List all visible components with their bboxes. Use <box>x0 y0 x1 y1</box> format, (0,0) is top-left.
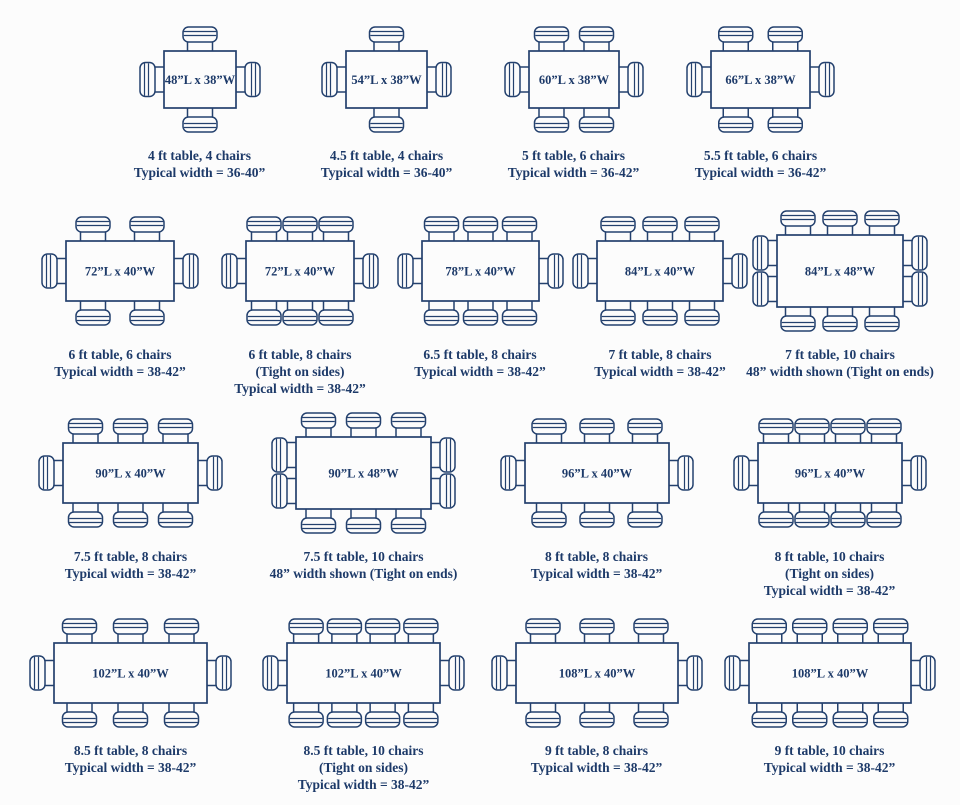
table-caption: 7 ft table, 8 chairsTypical width = 38-4… <box>594 346 726 380</box>
table-diagram: 90”L x 40”W <box>36 407 225 539</box>
table-top-view: 90”L x 40”W <box>36 416 225 530</box>
table-spec-cell: 84”L x 48”W 7 ft table, 10 chairs48” wid… <box>750 205 930 380</box>
table-spec-cell: 72”L x 40”W 6 ft table, 6 chairsTypical … <box>30 205 210 380</box>
caption-line: Typical width = 36-42” <box>508 164 640 181</box>
caption-line: 6.5 ft table, 8 chairs <box>414 346 546 363</box>
table-spec-cell: 96”L x 40”W 8 ft table, 8 chairsTypical … <box>480 407 713 582</box>
caption-line: 9 ft table, 8 chairs <box>531 742 663 759</box>
table-caption: 9 ft table, 8 chairsTypical width = 38-4… <box>531 742 663 776</box>
table-spec-cell: 72”L x 40”W 6 ft table, 8 chairs(Tight o… <box>210 205 390 397</box>
caption-line: Typical width = 38-42” <box>531 565 663 582</box>
table-top-view: 90”L x 48”W <box>269 410 458 536</box>
caption-line: 4.5 ft table, 4 chairs <box>321 147 453 164</box>
table-spec-cell: 90”L x 40”W 7.5 ft table, 8 chairsTypica… <box>14 407 247 582</box>
table-diagram: 108”L x 40”W <box>489 613 705 733</box>
caption-line: 48” width shown (Tight on ends) <box>270 565 458 582</box>
caption-line: (Tight on sides) <box>764 565 896 582</box>
table-diagram: 108”L x 40”W <box>722 613 938 733</box>
table-diagram: 72”L x 40”W <box>39 205 201 337</box>
table-size-label: 66”L x 38”W <box>725 73 796 87</box>
table-caption: 7.5 ft table, 8 chairsTypical width = 38… <box>65 548 197 582</box>
table-top-view: 96”L x 40”W <box>498 416 696 530</box>
table-caption: 6.5 ft table, 8 chairsTypical width = 38… <box>414 346 546 380</box>
table-top-view: 84”L x 40”W <box>570 214 750 328</box>
table-top-view: 48”L x 38”W <box>137 24 263 135</box>
table-caption: 5.5 ft table, 6 chairsTypical width = 36… <box>695 147 827 181</box>
table-spec-cell: 102”L x 40”W 8.5 ft table, 8 chairsTypic… <box>14 613 247 776</box>
table-spec-cell: 84”L x 40”W 7 ft table, 8 chairsTypical … <box>570 205 750 380</box>
table-top-view: 72”L x 40”W <box>39 214 201 328</box>
caption-line: Typical width = 38-42” <box>234 380 366 397</box>
table-caption: 7.5 ft table, 10 chairs48” width shown (… <box>270 548 458 582</box>
table-top-view: 72”L x 40”W <box>219 214 381 328</box>
chart-row: 90”L x 40”W 7.5 ft table, 8 chairsTypica… <box>0 407 960 599</box>
table-size-label: 48”L x 38”W <box>164 73 235 87</box>
table-diagram: 84”L x 48”W <box>750 205 930 337</box>
table-top-view: 108”L x 40”W <box>489 616 705 730</box>
caption-line: 6 ft table, 6 chairs <box>54 346 186 363</box>
table-top-view: 78”L x 40”W <box>395 214 566 328</box>
table-top-view: 108”L x 40”W <box>722 616 938 730</box>
caption-line: Typical width = 36-40” <box>321 164 453 181</box>
table-spec-cell: 90”L x 48”W 7.5 ft table, 10 chairs48” w… <box>247 407 480 582</box>
table-diagram: 60”L x 38”W <box>502 20 646 138</box>
caption-line: 7 ft table, 10 chairs <box>746 346 934 363</box>
table-size-label: 78”L x 40”W <box>445 265 516 279</box>
caption-line: 7 ft table, 8 chairs <box>594 346 726 363</box>
table-spec-cell: 108”L x 40”W 9 ft table, 10 chairsTypica… <box>713 613 946 776</box>
table-size-label: 102”L x 40”W <box>92 667 169 681</box>
table-caption: 8 ft table, 8 chairsTypical width = 38-4… <box>531 548 663 582</box>
caption-line: 48” width shown (Tight on ends) <box>746 363 934 380</box>
caption-line: 8.5 ft table, 8 chairs <box>65 742 197 759</box>
caption-line: Typical width = 38-42” <box>531 759 663 776</box>
table-diagram: 72”L x 40”W <box>219 205 381 337</box>
caption-line: 9 ft table, 10 chairs <box>764 742 896 759</box>
table-diagram: 78”L x 40”W <box>395 205 566 337</box>
caption-line: Typical width = 38-42” <box>764 582 896 599</box>
caption-line: Typical width = 38-42” <box>414 363 546 380</box>
caption-line: 6 ft table, 8 chairs <box>234 346 366 363</box>
table-size-label: 90”L x 48”W <box>328 467 399 481</box>
table-spec-cell: 48”L x 38”W 4 ft table, 4 chairsTypical … <box>106 20 293 181</box>
table-diagram: 66”L x 38”W <box>684 20 837 138</box>
table-diagram: 48”L x 38”W <box>137 20 263 138</box>
table-top-view: 96”L x 40”W <box>731 416 929 530</box>
caption-line: 7.5 ft table, 10 chairs <box>270 548 458 565</box>
caption-line: 4 ft table, 4 chairs <box>134 147 266 164</box>
caption-line: Typical width = 36-40” <box>134 164 266 181</box>
chart-row: 72”L x 40”W 6 ft table, 6 chairsTypical … <box>0 205 960 397</box>
table-top-view: 60”L x 38”W <box>502 24 646 135</box>
caption-line: Typical width = 38-42” <box>54 363 186 380</box>
caption-line: Typical width = 36-42” <box>695 164 827 181</box>
table-caption: 4 ft table, 4 chairsTypical width = 36-4… <box>134 147 266 181</box>
table-caption: 8.5 ft table, 8 chairsTypical width = 38… <box>65 742 197 776</box>
table-spec-cell: 54”L x 38”W 4.5 ft table, 4 chairsTypica… <box>293 20 480 181</box>
table-caption: 8 ft table, 10 chairs(Tight on sides)Typ… <box>764 548 896 599</box>
table-size-label: 96”L x 40”W <box>794 467 865 481</box>
caption-line: Typical width = 38-42” <box>65 565 197 582</box>
table-caption: 9 ft table, 10 chairsTypical width = 38-… <box>764 742 896 776</box>
table-size-label: 60”L x 38”W <box>538 73 609 87</box>
table-size-label: 108”L x 40”W <box>558 667 635 681</box>
chart-row: 102”L x 40”W 8.5 ft table, 8 chairsTypic… <box>0 613 960 793</box>
table-caption: 4.5 ft table, 4 chairsTypical width = 36… <box>321 147 453 181</box>
table-caption: 6 ft table, 6 chairsTypical width = 38-4… <box>54 346 186 380</box>
table-diagram: 90”L x 48”W <box>269 407 458 539</box>
table-top-view: 84”L x 48”W <box>750 208 930 334</box>
table-size-label: 72”L x 40”W <box>85 265 156 279</box>
caption-line: 8 ft table, 10 chairs <box>764 548 896 565</box>
table-size-label: 90”L x 40”W <box>95 467 166 481</box>
table-top-view: 102”L x 40”W <box>27 616 234 730</box>
table-top-view: 54”L x 38”W <box>319 24 454 135</box>
table-size-label: 54”L x 38”W <box>351 73 422 87</box>
table-size-label: 102”L x 40”W <box>325 667 402 681</box>
table-caption: 7 ft table, 10 chairs48” width shown (Ti… <box>746 346 934 380</box>
table-spec-cell: 96”L x 40”W 8 ft table, 10 chairs(Tight … <box>713 407 946 599</box>
table-diagram: 54”L x 38”W <box>319 20 454 138</box>
table-diagram: 96”L x 40”W <box>498 407 696 539</box>
caption-line: 8 ft table, 8 chairs <box>531 548 663 565</box>
table-spec-cell: 78”L x 40”W 6.5 ft table, 8 chairsTypica… <box>390 205 570 380</box>
table-diagram: 84”L x 40”W <box>570 205 750 337</box>
table-size-label: 108”L x 40”W <box>791 667 868 681</box>
table-size-label: 84”L x 48”W <box>805 265 876 279</box>
table-top-view: 66”L x 38”W <box>684 24 837 135</box>
caption-line: 8.5 ft table, 10 chairs <box>298 742 430 759</box>
caption-line: 7.5 ft table, 8 chairs <box>65 548 197 565</box>
caption-line: (Tight on sides) <box>234 363 366 380</box>
caption-line: 5.5 ft table, 6 chairs <box>695 147 827 164</box>
caption-line: 5 ft table, 6 chairs <box>508 147 640 164</box>
chart-row: 48”L x 38”W 4 ft table, 4 chairsTypical … <box>0 20 960 181</box>
table-diagram: 102”L x 40”W <box>27 613 234 733</box>
table-caption: 5 ft table, 6 chairsTypical width = 36-4… <box>508 147 640 181</box>
table-caption: 6 ft table, 8 chairs(Tight on sides)Typi… <box>234 346 366 397</box>
table-size-chart: 48”L x 38”W 4 ft table, 4 chairsTypical … <box>0 0 960 793</box>
table-spec-cell: 60”L x 38”W 5 ft table, 6 chairsTypical … <box>480 20 667 181</box>
table-top-view: 102”L x 40”W <box>260 616 467 730</box>
table-caption: 8.5 ft table, 10 chairs(Tight on sides)T… <box>298 742 430 793</box>
table-diagram: 96”L x 40”W <box>731 407 929 539</box>
table-diagram: 102”L x 40”W <box>260 613 467 733</box>
table-spec-cell: 102”L x 40”W 8.5 ft table, 10 chairs(Tig… <box>247 613 480 793</box>
table-spec-cell: 108”L x 40”W 9 ft table, 8 chairsTypical… <box>480 613 713 776</box>
caption-line: Typical width = 38-42” <box>764 759 896 776</box>
table-size-label: 96”L x 40”W <box>561 467 632 481</box>
caption-line: (Tight on sides) <box>298 759 430 776</box>
caption-line: Typical width = 38-42” <box>298 776 430 793</box>
table-size-label: 72”L x 40”W <box>265 265 336 279</box>
caption-line: Typical width = 38-42” <box>594 363 726 380</box>
table-spec-cell: 66”L x 38”W 5.5 ft table, 6 chairsTypica… <box>667 20 854 181</box>
caption-line: Typical width = 38-42” <box>65 759 197 776</box>
table-size-label: 84”L x 40”W <box>625 265 696 279</box>
